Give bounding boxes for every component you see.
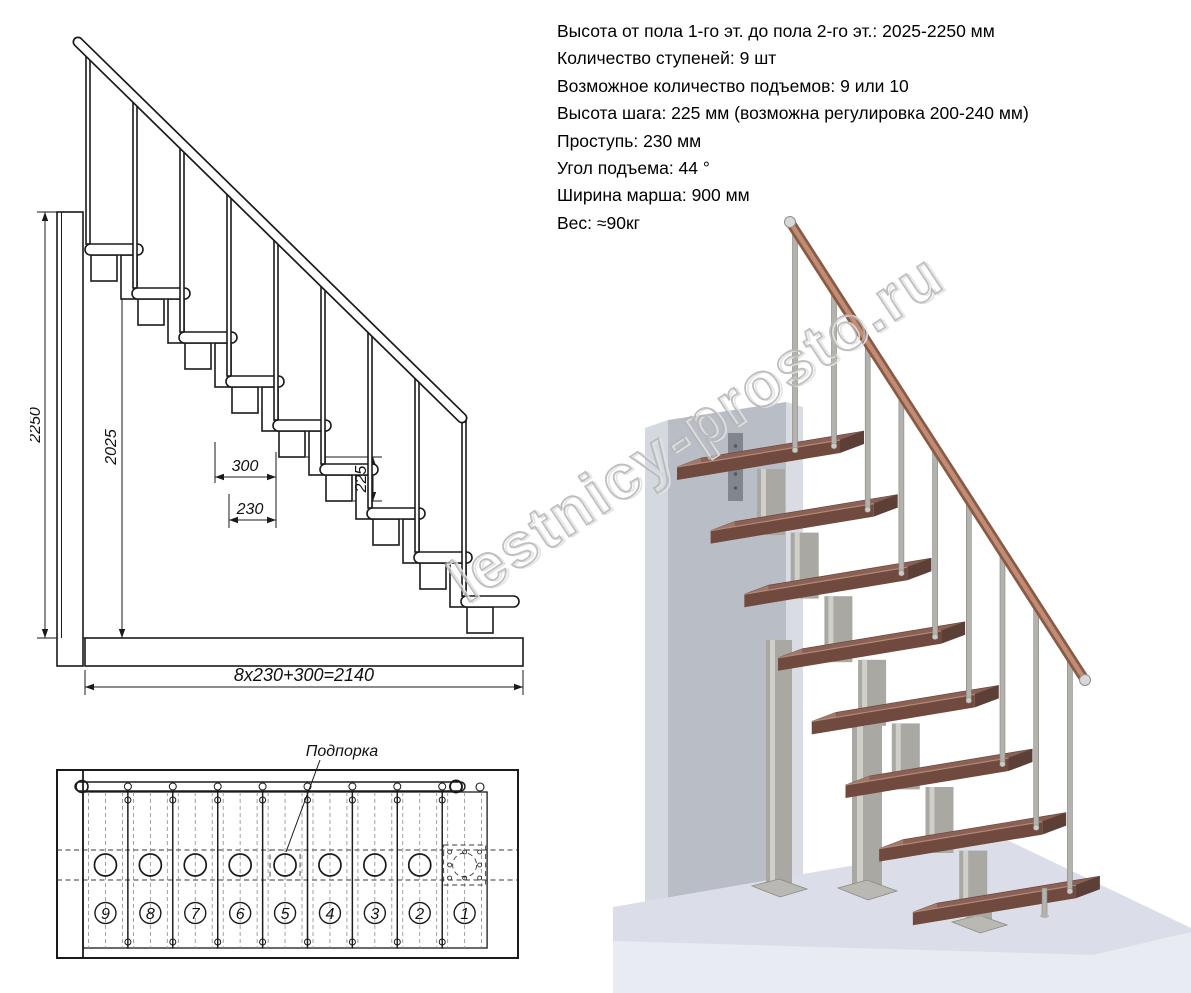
base-floor: [85, 638, 523, 666]
baluster: [274, 235, 278, 420]
dim-total-run: 8x230+300=2140: [234, 665, 374, 685]
module-box: [420, 563, 446, 589]
plan-handrail: [75, 781, 484, 793]
support-label: Подпорка: [306, 743, 378, 760]
step-number: 5: [281, 906, 290, 923]
dim-tread-depth: 230: [236, 501, 264, 518]
step-tread: [461, 596, 519, 607]
rail-baluster-mark: [349, 783, 356, 790]
handrail-cap-top: [785, 217, 796, 228]
staircase-spec-sheet: Высота от пола 1-го эт. до пола 2-го эт.…: [0, 0, 1191, 993]
baluster-joint: [1067, 888, 1073, 894]
baluster: [415, 372, 419, 552]
support-leader-line: [286, 760, 320, 852]
baluster-joint: [831, 443, 837, 449]
wall-post: [57, 212, 83, 666]
dim-step-rise: 225: [353, 466, 370, 494]
module-box: [373, 519, 399, 545]
baluster-joint: [1000, 761, 1006, 767]
elevation-drawing: 2250 2025 300 230 225 8x230+300=2140: [30, 22, 545, 735]
step-number: 9: [101, 906, 110, 923]
step-leg-3d: [1042, 888, 1047, 916]
rail-baluster-mark: [439, 783, 446, 790]
baluster-joint: [1033, 825, 1039, 831]
step-number: 3: [370, 906, 379, 923]
rail-baluster-mark: [214, 783, 221, 790]
module-box: [467, 607, 493, 633]
baluster: [180, 143, 184, 332]
step-number: 7: [191, 906, 201, 923]
handrail-cap-bottom: [1080, 675, 1091, 686]
elevation-steps: [85, 52, 519, 633]
module-box: [138, 299, 164, 325]
bolt-mark: [478, 863, 482, 867]
baluster-3d: [1067, 657, 1072, 894]
baluster-3d: [933, 447, 938, 639]
step-number: 6: [236, 906, 245, 923]
baluster-3d: [865, 343, 870, 512]
baluster-joint: [792, 447, 798, 453]
baluster-3d: [793, 230, 798, 452]
module-box: [91, 255, 117, 281]
baluster-joint: [966, 698, 972, 704]
baluster-3d: [1034, 604, 1039, 829]
module-box: [232, 387, 258, 413]
baluster-3d: [1000, 552, 1005, 766]
baluster: [462, 418, 466, 596]
module-box: [185, 343, 211, 369]
step-number: 8: [146, 906, 155, 923]
spec-line-rise-count: Возможное количество подъемов: 9 или 10: [557, 73, 1177, 100]
dim-platform-depth: 300: [232, 458, 259, 475]
step-number: 4: [325, 906, 334, 923]
spec-line-height-range: Высота от пола 1-го эт. до пола 2-го эт.…: [557, 18, 1177, 45]
plan-view-drawing: 987654321 Подпорка: [42, 733, 532, 978]
rail-baluster-mark: [169, 783, 176, 790]
baluster-joint: [865, 507, 871, 513]
bolt-mark: [448, 863, 452, 867]
spec-line-step-count: Количество ступеней: 9 шт: [557, 45, 1177, 72]
dim-total-height: 2250: [30, 407, 44, 444]
bolt-mark: [448, 850, 452, 854]
plan-step-cells: 987654321: [57, 783, 518, 948]
baluster-joint: [899, 570, 905, 576]
baluster: [133, 98, 137, 288]
baluster: [86, 52, 90, 244]
module-box: [326, 475, 352, 501]
module-box: [279, 431, 305, 457]
rail-baluster-mark: [124, 783, 131, 790]
spec-line-step-height: Высота шага: 225 мм (возможна регулировк…: [557, 100, 1177, 127]
support-column-podporka: [852, 715, 882, 892]
spec-line-angle: Угол подъема: 44 °: [557, 155, 1177, 182]
staircase-3d-render: [595, 205, 1191, 993]
bolt-mark: [448, 876, 452, 880]
bolt-mark: [478, 850, 482, 854]
step-number: 1: [460, 906, 469, 923]
rail-baluster-mark: [394, 783, 401, 790]
step-number: 2: [414, 906, 424, 923]
spec-line-tread: Проступь: 230 мм: [557, 128, 1177, 155]
bolt-mark: [478, 876, 482, 880]
baluster: [321, 281, 325, 464]
baluster-joint: [932, 634, 938, 640]
baluster: [227, 189, 231, 376]
baluster-3d: [899, 395, 904, 575]
leg-foot: [1040, 914, 1049, 918]
rail-baluster-mark: [259, 783, 266, 790]
baluster-3d: [832, 290, 837, 448]
dim-flight-height: 2025: [103, 429, 120, 466]
baluster-3d: [966, 500, 971, 703]
